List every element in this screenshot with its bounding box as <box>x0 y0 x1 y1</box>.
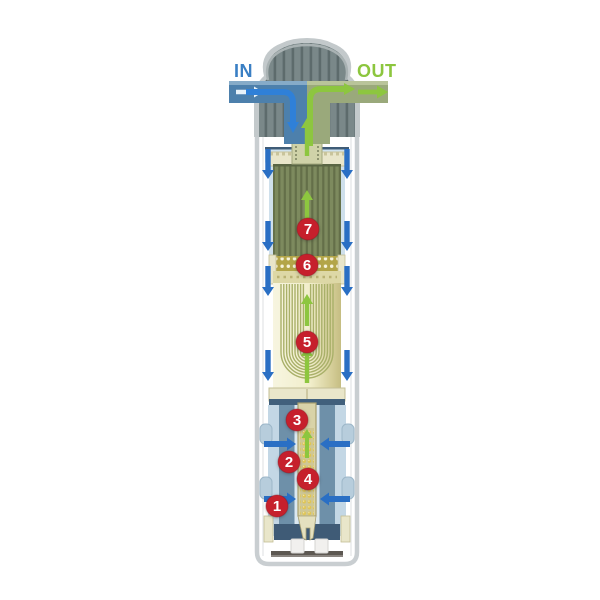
marker-number: 7 <box>304 221 312 238</box>
marker-number: 5 <box>303 334 311 351</box>
inlet-pipe-highlight <box>229 81 308 85</box>
marker-number: 1 <box>273 498 281 515</box>
base-foot-right <box>315 539 328 553</box>
stage-marker-2: 2 <box>278 451 300 473</box>
stage-marker-7: 7 <box>297 218 319 240</box>
in-label: IN <box>234 61 253 81</box>
diagram-art: 1 2 3 4 5 6 7 IN OUT <box>0 0 600 600</box>
outlet-pipe-highlight <box>307 81 388 85</box>
marker-number: 2 <box>285 454 293 471</box>
stack-bump <box>342 477 354 499</box>
base-foot-left <box>291 539 304 553</box>
out-label: OUT <box>357 61 397 81</box>
stage-marker-1: 1 <box>266 495 288 517</box>
water-filter-cutaway-diagram: 1 2 3 4 5 6 7 IN OUT <box>0 0 600 600</box>
base-bracket-right <box>341 516 350 542</box>
base-bracket-left <box>264 516 273 542</box>
stage-marker-3: 3 <box>286 409 308 431</box>
sediment-column-right <box>320 405 336 528</box>
marker-number: 3 <box>293 412 301 429</box>
stage-marker-6: 6 <box>296 254 318 276</box>
marker-number: 6 <box>303 257 311 274</box>
marker-number: 4 <box>304 471 313 488</box>
stage-marker-4: 4 <box>297 468 319 490</box>
stage-marker-5: 5 <box>296 331 318 353</box>
base-plate-edge <box>271 555 343 557</box>
stack-bump <box>260 477 272 499</box>
